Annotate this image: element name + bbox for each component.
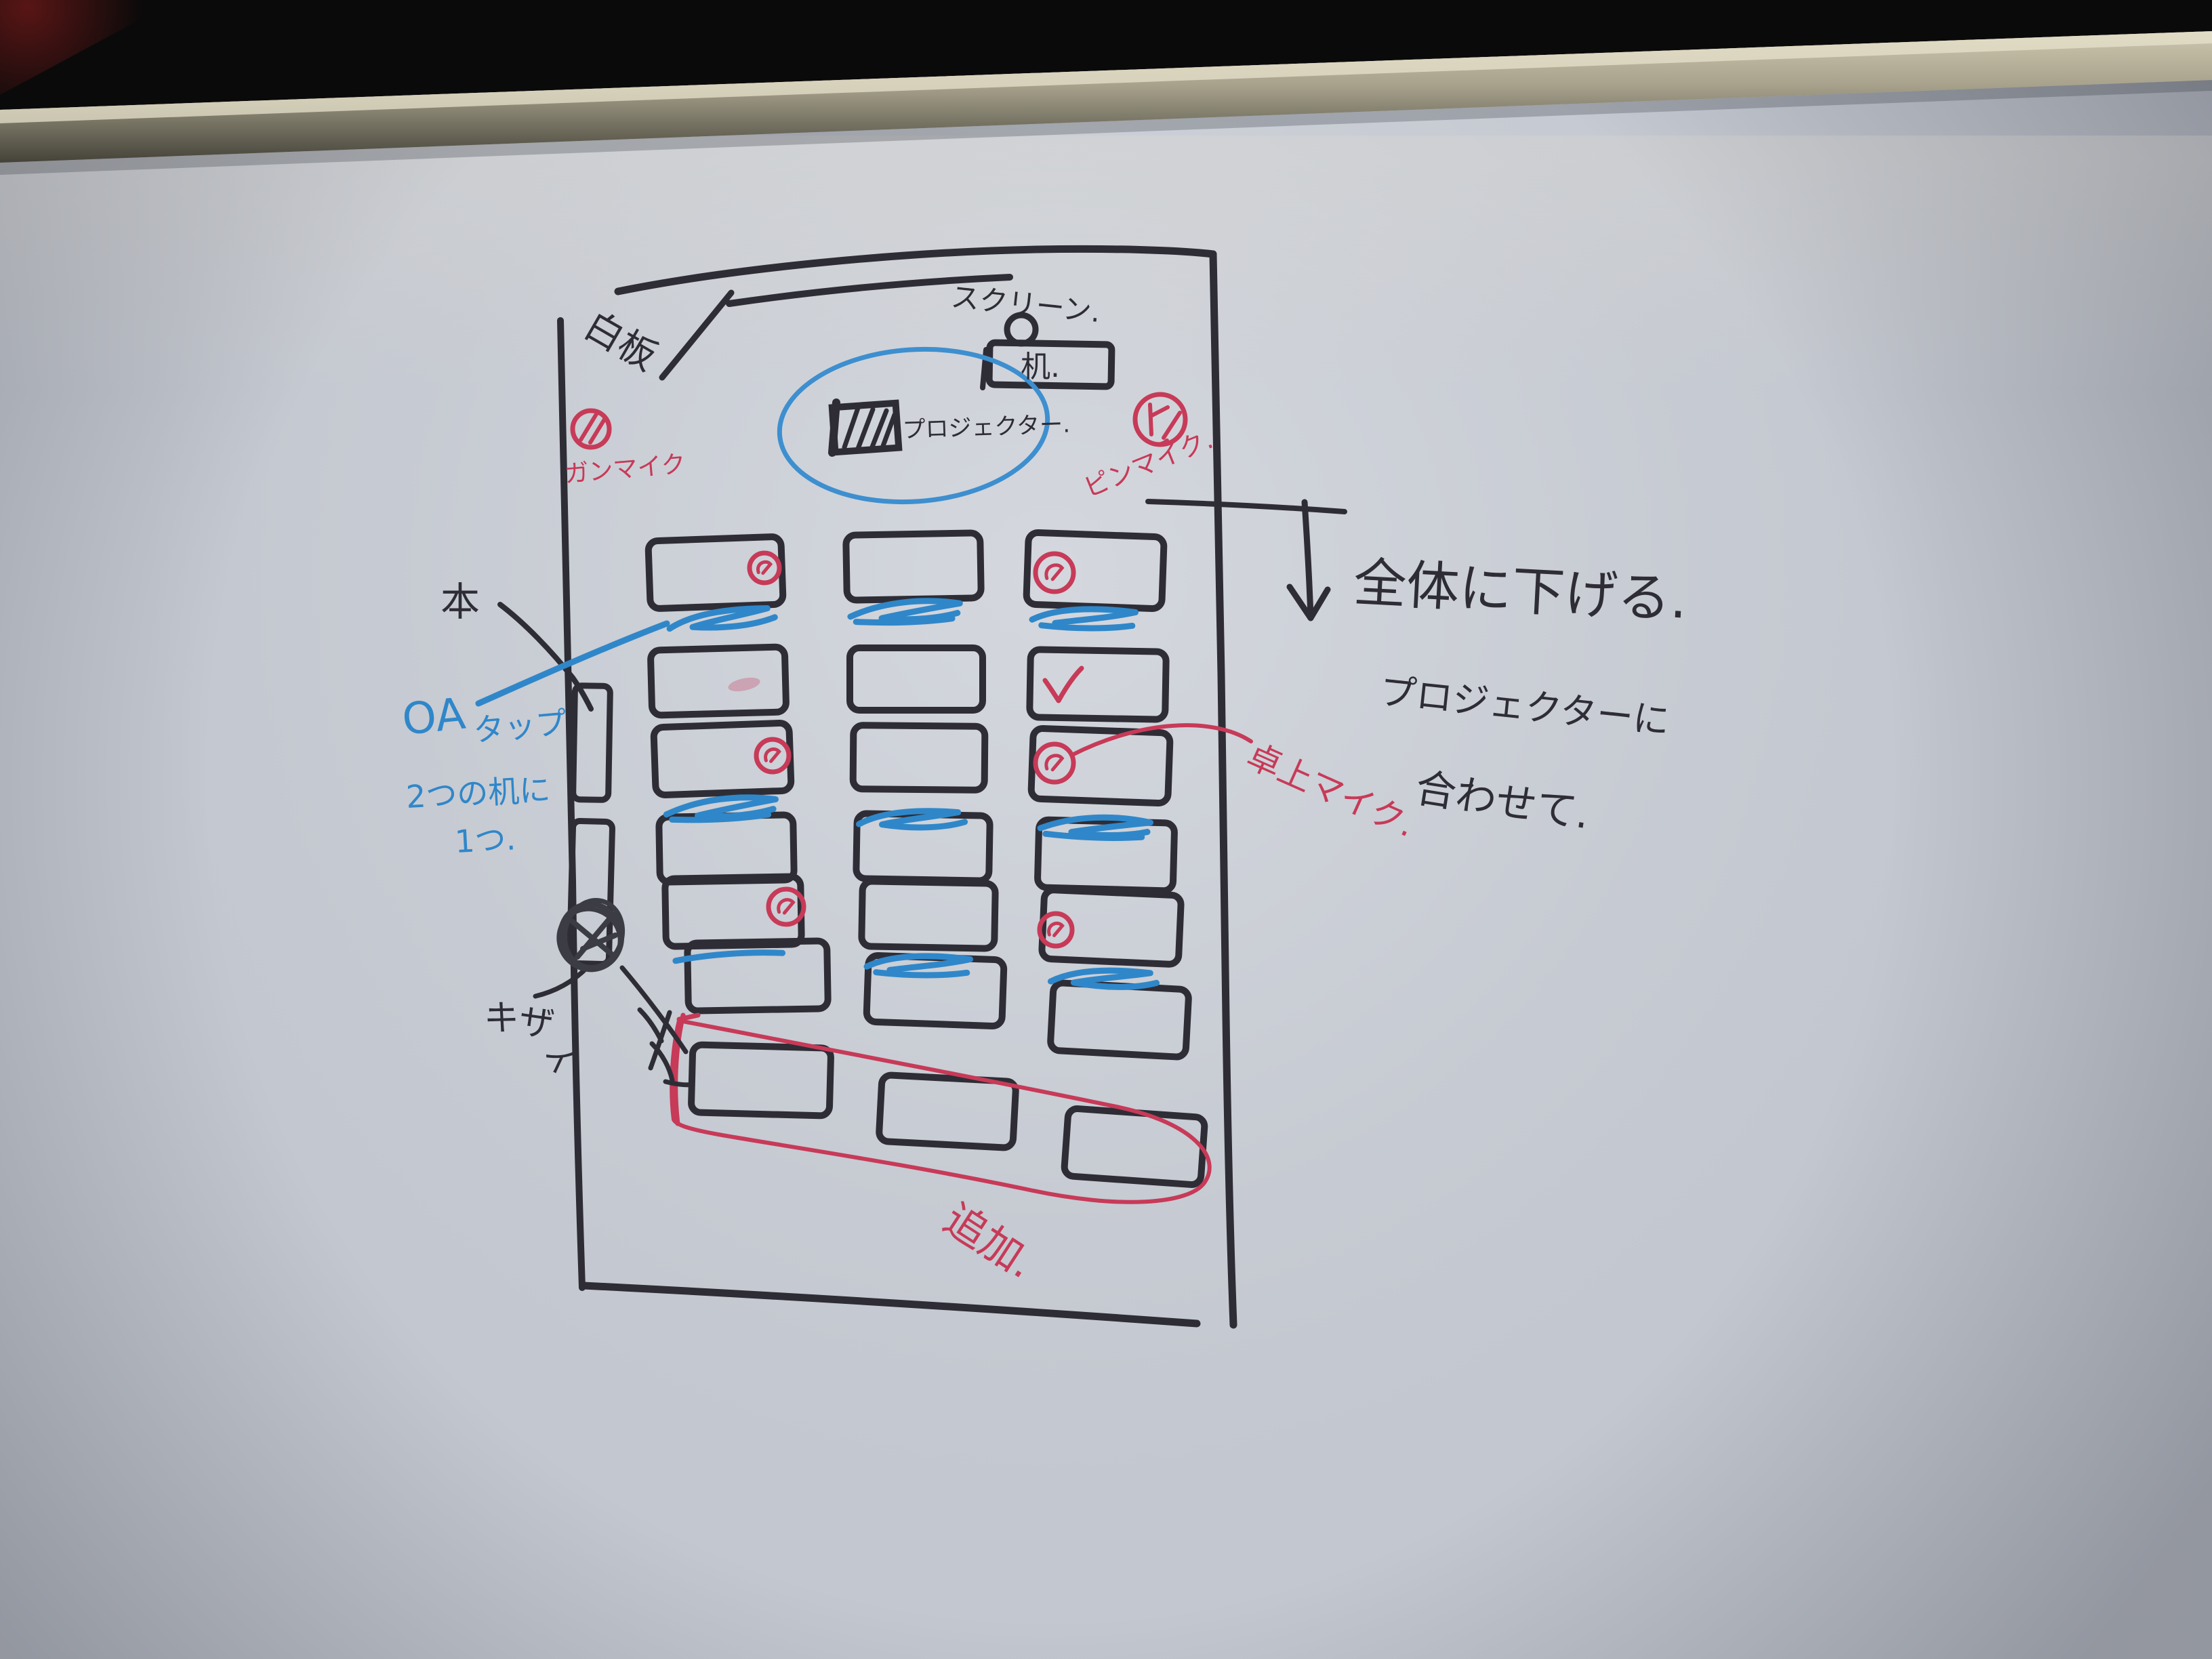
board-top-sheen	[0, 136, 2212, 420]
whiteboard-photo: 白板 スクリーン. 机. プロジェクター. ガンマイク ピンマイク. 全体に下げ…	[0, 0, 2212, 1659]
projector-box-edge	[832, 403, 836, 453]
oa-tap-note-line-2: 2つの机に	[405, 771, 552, 815]
whiteboard-canvas: 白板 スクリーン. 机. プロジェクター. ガンマイク ピンマイク. 全体に下げ…	[0, 0, 2212, 1659]
oa-tap-label-prefix: OA	[400, 689, 468, 745]
presenter-desk-label: 机.	[1021, 350, 1060, 384]
oa-tap-note-line-3: 1つ.	[454, 820, 517, 860]
book-label: 本	[441, 579, 480, 625]
